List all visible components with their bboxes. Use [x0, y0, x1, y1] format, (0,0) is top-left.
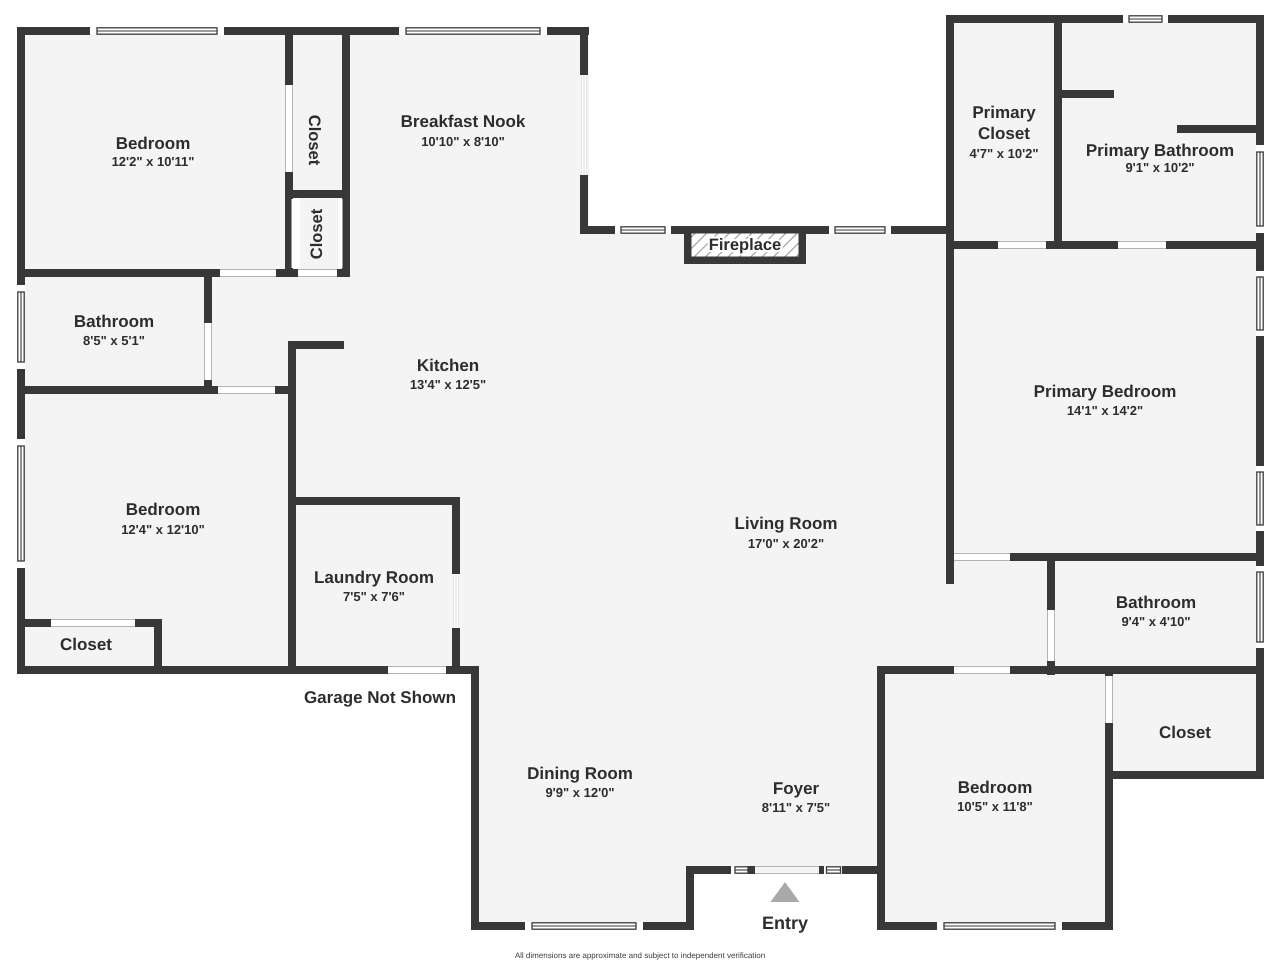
svg-text:Closet: Closet: [60, 635, 112, 654]
svg-text:8'5" x 5'1": 8'5" x 5'1": [83, 333, 145, 348]
svg-text:Kitchen: Kitchen: [417, 356, 479, 375]
svg-text:14'1" x 14'2": 14'1" x 14'2": [1067, 403, 1143, 418]
svg-text:17'0" x 20'2": 17'0" x 20'2": [748, 536, 824, 551]
svg-text:Closet: Closet: [1159, 723, 1211, 742]
svg-text:8'11" x 7'5": 8'11" x 7'5": [762, 800, 830, 815]
svg-text:Garage Not Shown: Garage Not Shown: [304, 688, 456, 707]
svg-text:Primary: Primary: [972, 103, 1036, 122]
svg-text:Bedroom: Bedroom: [116, 134, 191, 153]
svg-text:Breakfast Nook: Breakfast Nook: [401, 112, 526, 131]
svg-text:4'7" x 10'2": 4'7" x 10'2": [969, 146, 1038, 161]
svg-text:9'1" x 10'2": 9'1" x 10'2": [1125, 160, 1194, 175]
svg-text:12'4" x 12'10": 12'4" x 12'10": [121, 522, 205, 537]
svg-text:Fireplace: Fireplace: [709, 236, 781, 254]
svg-text:Dining Room: Dining Room: [527, 764, 633, 783]
svg-text:Closet: Closet: [305, 115, 323, 166]
svg-text:Bathroom: Bathroom: [1116, 593, 1196, 612]
svg-text:Foyer: Foyer: [773, 779, 820, 798]
svg-text:10'5" x 11'8": 10'5" x 11'8": [957, 799, 1033, 814]
svg-text:Laundry Room: Laundry Room: [314, 568, 434, 587]
svg-text:13'4" x 12'5": 13'4" x 12'5": [410, 377, 486, 392]
svg-text:Living Room: Living Room: [735, 514, 838, 533]
svg-text:10'10" x 8'10": 10'10" x 8'10": [421, 134, 505, 149]
svg-text:9'4" x 4'10": 9'4" x 4'10": [1121, 614, 1190, 629]
svg-text:Primary Bedroom: Primary Bedroom: [1034, 382, 1177, 401]
svg-text:12'2" x 10'11": 12'2" x 10'11": [112, 154, 195, 169]
svg-text:Entry: Entry: [762, 913, 808, 933]
svg-text:9'9" x 12'0": 9'9" x 12'0": [545, 785, 614, 800]
svg-text:Bathroom: Bathroom: [74, 312, 154, 331]
svg-text:Bedroom: Bedroom: [126, 500, 201, 519]
svg-text:7'5" x 7'6": 7'5" x 7'6": [343, 589, 405, 604]
svg-text:Primary Bathroom: Primary Bathroom: [1086, 141, 1234, 160]
svg-text:All dimensions are approximate: All dimensions are approximate and subje…: [515, 951, 765, 960]
svg-text:Closet: Closet: [308, 208, 326, 259]
svg-text:Bedroom: Bedroom: [958, 778, 1033, 797]
svg-text:Closet: Closet: [978, 124, 1030, 143]
